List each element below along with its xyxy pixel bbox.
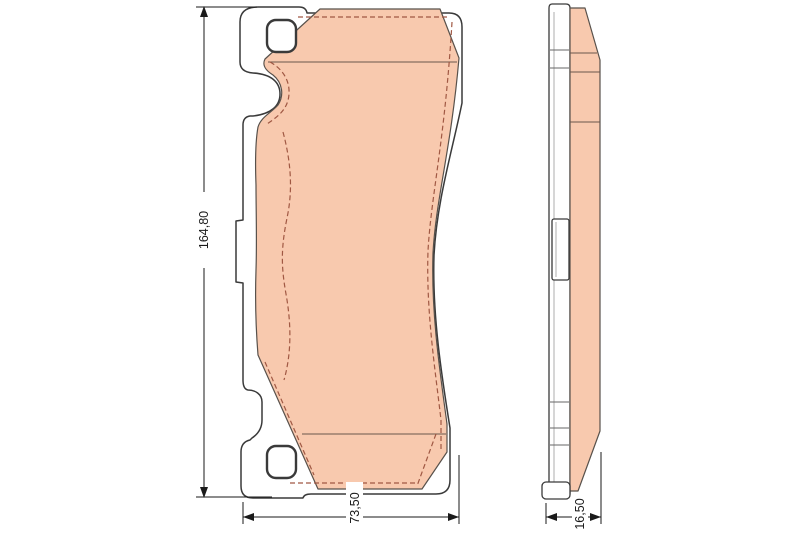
thickness-dimension-label: 16,50 bbox=[573, 498, 587, 529]
side-friction-material bbox=[570, 8, 600, 491]
mounting-hole-bottom bbox=[267, 446, 296, 478]
height-dimension-label: 164,80 bbox=[197, 211, 211, 249]
thickness-arrow-right bbox=[590, 513, 601, 521]
brake-pad-technical-drawing: 164,80 73,50 16,50 bbox=[0, 0, 800, 533]
height-arrow-down bbox=[200, 487, 208, 498]
width-arrow-right bbox=[448, 513, 459, 521]
height-arrow-up bbox=[200, 6, 208, 17]
drawing-canvas: 164,80 73,50 16,50 bbox=[0, 0, 800, 533]
mounting-hole-top bbox=[267, 20, 296, 52]
front-view bbox=[236, 7, 462, 498]
side-bottom-hook bbox=[542, 482, 570, 499]
side-mid-tab bbox=[552, 219, 569, 280]
side-view bbox=[542, 4, 600, 499]
width-arrow-left bbox=[243, 513, 254, 521]
thickness-arrow-left bbox=[546, 513, 557, 521]
width-dimension-label: 73,50 bbox=[348, 492, 362, 523]
